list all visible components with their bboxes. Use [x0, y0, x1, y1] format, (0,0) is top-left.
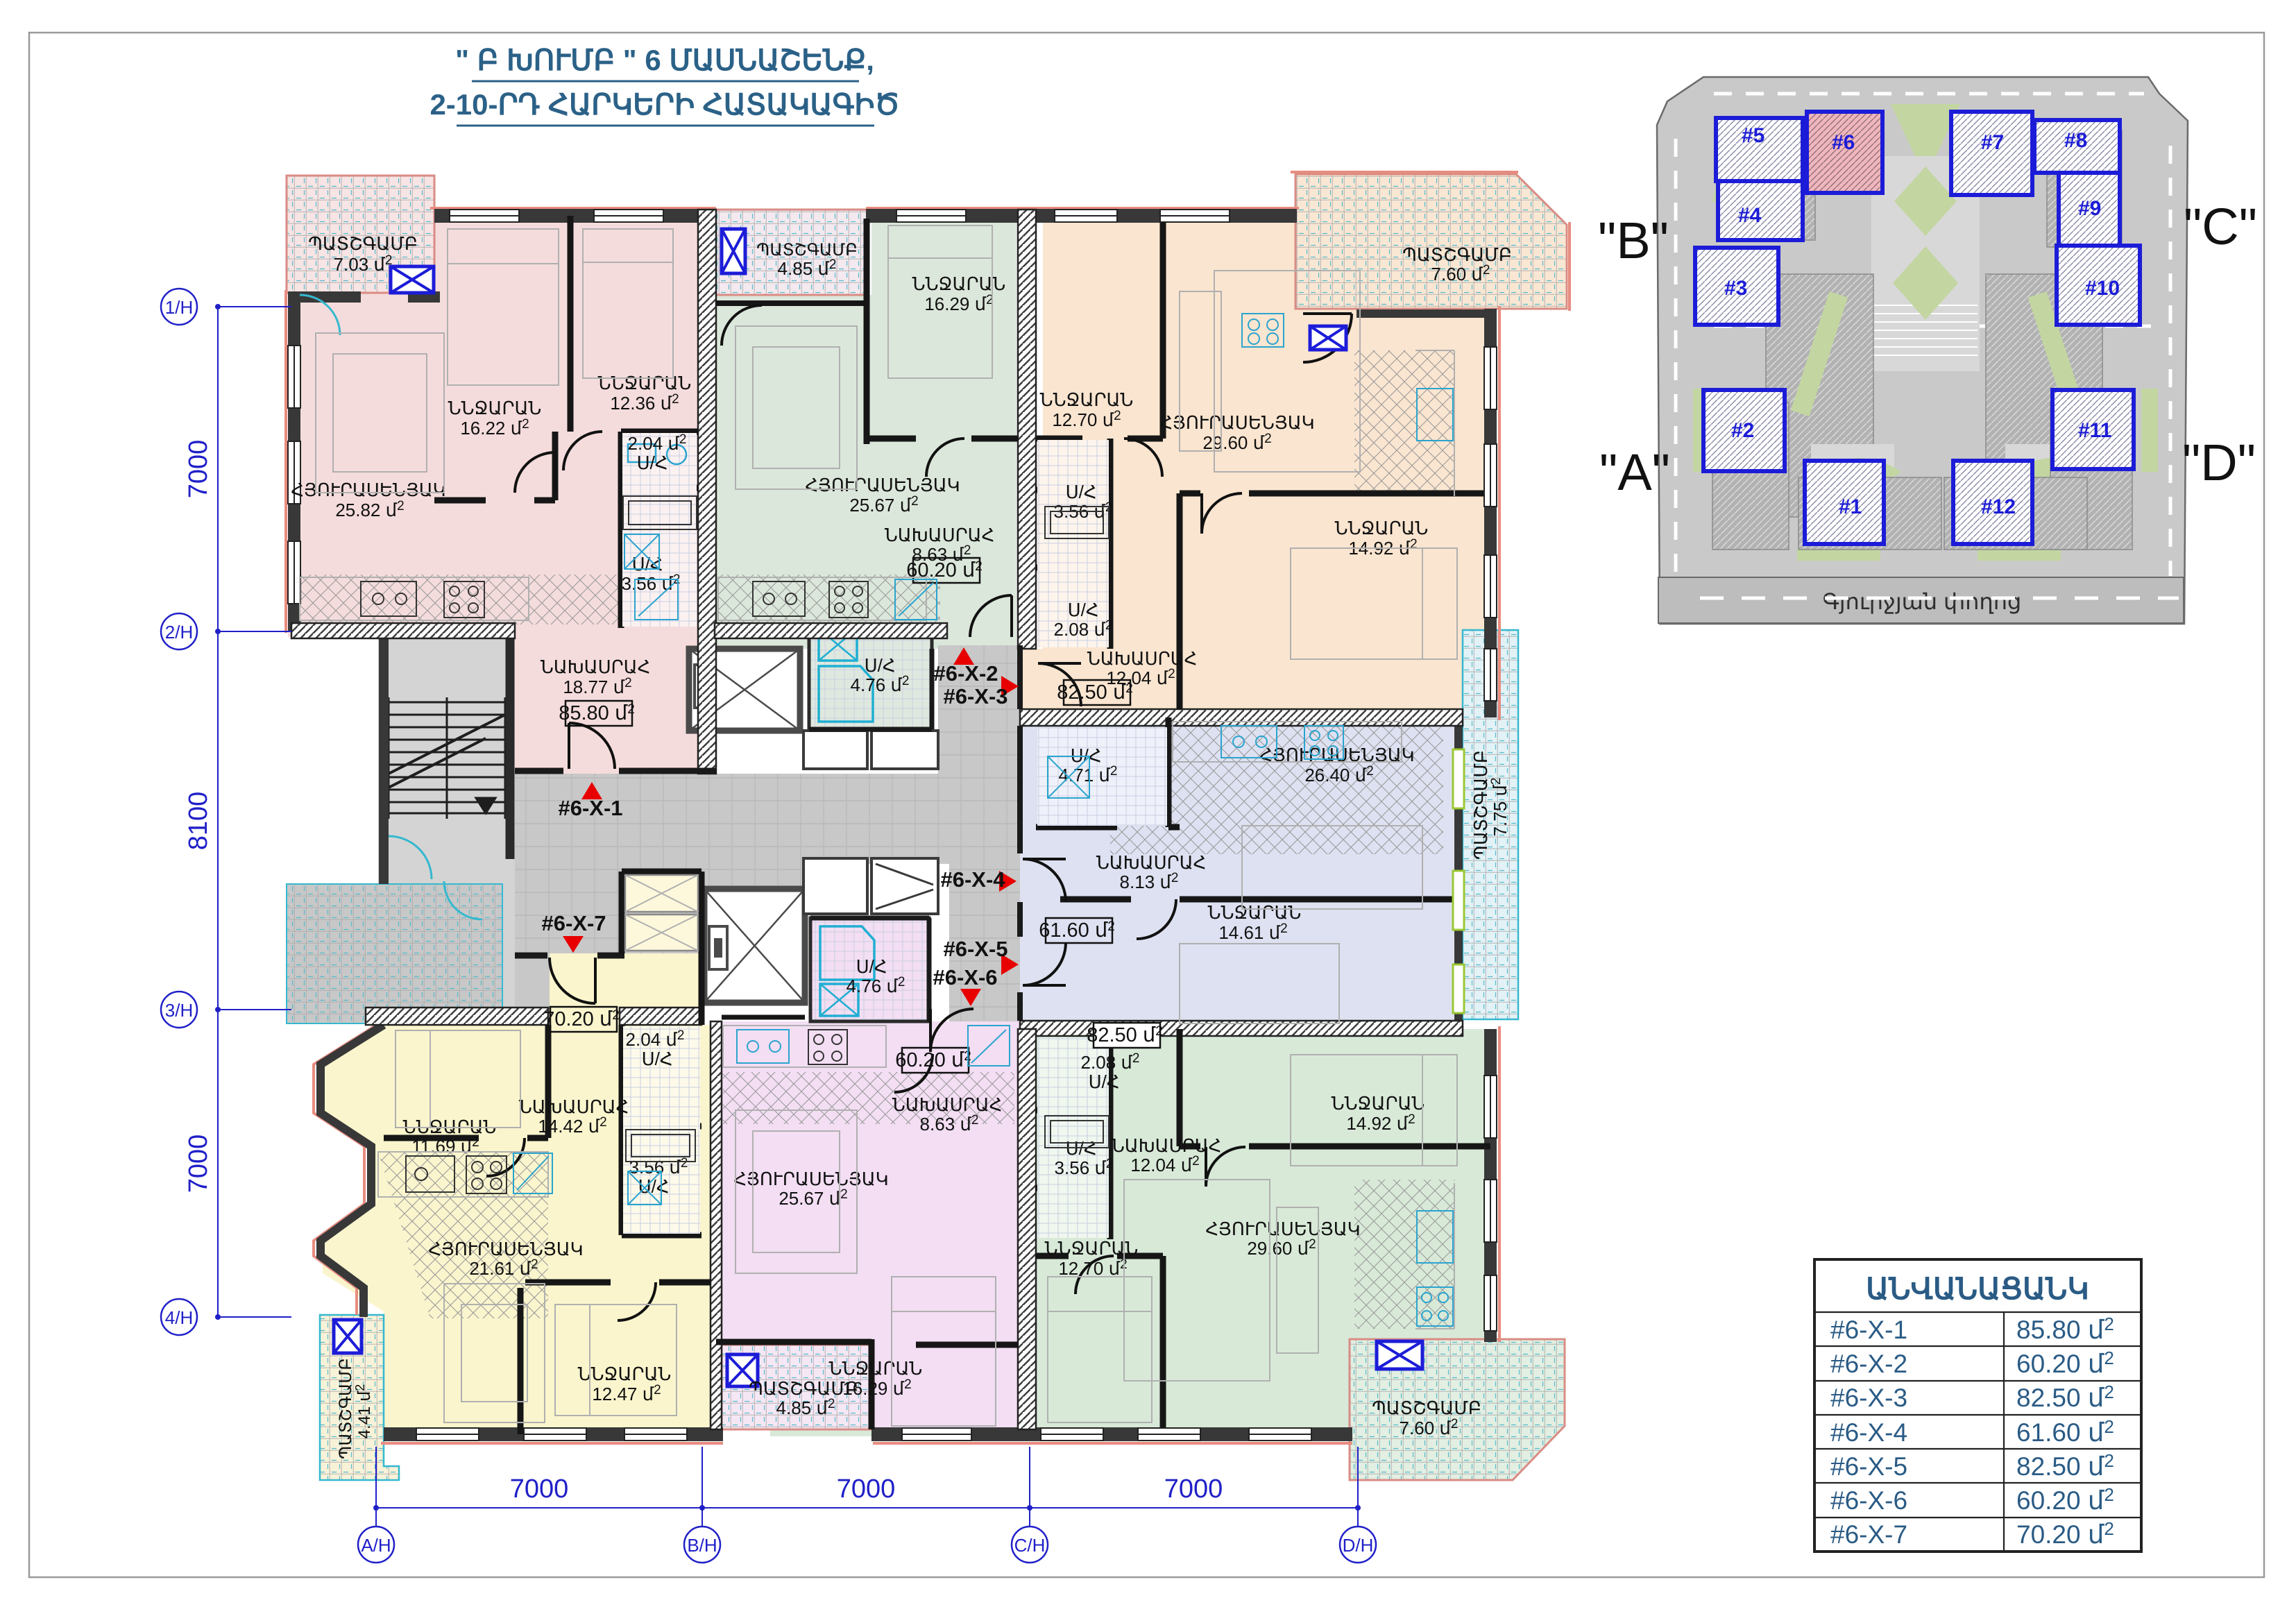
svg-text:#9: #9	[2078, 197, 2101, 220]
svg-text:ՆՆՋԱՐԱՆ: ՆՆՋԱՐԱՆ	[1040, 389, 1134, 410]
svg-text:ՆԱԽԱՍՐԱՀ: ՆԱԽԱՍՐԱՀ	[519, 1096, 629, 1117]
svg-text:7000: 7000	[184, 440, 213, 499]
svg-text:ՀՅՈՒՐԱՍԵՆՅԱԿ: ՀՅՈՒՐԱՍԵՆՅԱԿ	[291, 479, 445, 500]
svg-text:25.67 մ2: 25.67 մ2	[779, 1187, 847, 1209]
svg-text:#6-X-1: #6-X-1	[558, 796, 622, 820]
svg-text:12.70 մ2: 12.70 մ2	[1052, 409, 1121, 430]
svg-text:4.85 մ2: 4.85 մ2	[778, 257, 837, 279]
svg-text:Ս/Հ: Ս/Հ	[1066, 482, 1097, 502]
svg-text:ՆԱԽԱՍՐԱՀ: ՆԱԽԱՍՐԱՀ	[1096, 852, 1206, 873]
svg-text:25.67 մ2: 25.67 մ2	[849, 494, 918, 516]
svg-text:#6-X-6: #6-X-6	[1830, 1486, 1907, 1515]
svg-text:ՆՆՋԱՐԱՆ: ՆՆՋԱՐԱՆ	[1335, 518, 1429, 538]
svg-text:ՆԱԽԱՍՐԱՀ: ՆԱԽԱՍՐԱՀ	[1087, 648, 1197, 669]
svg-text:ՀՅՈՒՐԱՍԵՆՅԱԿ: ՀՅՈՒՐԱՍԵՆՅԱԿ	[1159, 412, 1314, 433]
svg-text:7.60 մ2: 7.60 մ2	[1400, 1417, 1459, 1438]
svg-text:61.60 մ2: 61.60 մ2	[1039, 919, 1115, 942]
svg-text:#1: #1	[1839, 495, 1862, 518]
svg-text:#12: #12	[1981, 495, 2016, 518]
svg-text:60.20 մ2: 60.20 մ2	[895, 1049, 971, 1071]
svg-text:C/H: C/H	[1014, 1535, 1046, 1556]
svg-text:29.60 մ2: 29.60 մ2	[1202, 432, 1271, 453]
svg-text:7000: 7000	[510, 1475, 569, 1504]
svg-text:ՆՆՋԱՐԱՆ: ՆՆՋԱՐԱՆ	[829, 1358, 923, 1379]
svg-text:ՊԱՏՇԳԱՄԲ: ՊԱՏՇԳԱՄԲ	[1402, 244, 1512, 265]
svg-text:ՆՆՋԱՐԱՆ: ՆՆՋԱՐԱՆ	[1332, 1093, 1425, 1114]
svg-text:ՀՅՈՒՐԱՍԵՆՅԱԿ: ՀՅՈՒՐԱՍԵՆՅԱԿ	[428, 1239, 583, 1259]
svg-text:#5: #5	[1742, 124, 1764, 147]
svg-text:Գյուրջյան փողոց: Գյուրջյան փողոց	[1823, 589, 2022, 614]
svg-text:4.85 մ2: 4.85 մ2	[776, 1397, 835, 1418]
svg-text:Ս/Հ: Ս/Հ	[1089, 1071, 1120, 1092]
svg-text:2.04 մ2: 2.04 մ2	[628, 432, 687, 454]
svg-text:#6-X-3: #6-X-3	[1830, 1384, 1907, 1412]
svg-text:61.60 մ2: 61.60 մ2	[2016, 1416, 2114, 1447]
svg-text:8.63 մ2: 8.63 մ2	[920, 1113, 979, 1135]
svg-text:ՀՅՈՒՐԱՍԵՆՅԱԿ: ՀՅՈՒՐԱՍԵՆՅԱԿ	[1205, 1218, 1360, 1239]
svg-text:#6-X-2: #6-X-2	[933, 661, 998, 686]
svg-text:"A": "A"	[1599, 443, 1670, 501]
svg-text:12.47 մ2: 12.47 մ2	[592, 1383, 661, 1404]
svg-text:ՆԱԽԱՍՐԱՀ: ՆԱԽԱՍՐԱՀ	[885, 525, 994, 545]
svg-text:12.04 մ2: 12.04 մ2	[1130, 1154, 1199, 1175]
svg-text:#2: #2	[1731, 419, 1754, 442]
svg-text:60.20 մ2: 60.20 մ2	[2016, 1348, 2114, 1378]
svg-text:29.60 մ2: 29.60 մ2	[1247, 1237, 1316, 1259]
svg-text:60.20 մ2: 60.20 մ2	[2016, 1484, 2114, 1515]
svg-text:1/H: 1/H	[165, 297, 193, 318]
svg-text:ԱՆՎԱՆԱՑԱՆԿ: ԱՆՎԱՆԱՑԱՆԿ	[1866, 1273, 2089, 1306]
svg-text:ՊԱՏՇԳԱՄԲ: ՊԱՏՇԳԱՄԲ	[756, 241, 858, 260]
svg-text:ՊԱՏՇԳԱՄԲ: ՊԱՏՇԳԱՄԲ	[337, 1358, 355, 1459]
svg-text:25.82 մ2: 25.82 մ2	[335, 499, 404, 520]
svg-text:2.08 մ2: 2.08 մ2	[1054, 618, 1113, 640]
svg-text:70.20 մ2: 70.20 մ2	[2016, 1518, 2114, 1549]
svg-text:2.04 մ2: 2.04 մ2	[626, 1028, 685, 1050]
svg-text:60.20 մ2: 60.20 մ2	[906, 559, 983, 581]
svg-text:#6: #6	[1832, 131, 1855, 154]
svg-text:2.08 մ2: 2.08 մ2	[1081, 1051, 1140, 1073]
svg-text:18.77 մ2: 18.77 մ2	[563, 676, 631, 697]
svg-text:26.40 մ2: 26.40 մ2	[1304, 764, 1373, 785]
svg-text:11.69 մ2: 11.69 մ2	[411, 1135, 479, 1157]
svg-text:#6-X-2: #6-X-2	[1830, 1350, 1907, 1378]
svg-text:D/H: D/H	[1343, 1535, 1374, 1556]
svg-text:Ս/Հ: Ս/Հ	[637, 452, 668, 473]
svg-text:8.13 մ2: 8.13 մ2	[1120, 871, 1179, 892]
svg-text:2/H: 2/H	[165, 622, 193, 643]
svg-text:#4: #4	[1738, 204, 1762, 227]
svg-text:Ս/Հ: Ս/Հ	[856, 956, 887, 977]
svg-text:82.50 մ2: 82.50 մ2	[2016, 1450, 2114, 1481]
svg-text:#6-X-4: #6-X-4	[1830, 1418, 1907, 1447]
svg-text:B/H: B/H	[687, 1535, 717, 1556]
svg-text:3.56 մ2: 3.56 մ2	[1055, 1157, 1114, 1178]
svg-text:7000: 7000	[837, 1475, 896, 1504]
svg-text:"C": "C"	[2184, 198, 2257, 255]
svg-text:#3: #3	[1724, 277, 1747, 300]
svg-text:ՆԱԽԱՍՐԱՀ: ՆԱԽԱՍՐԱՀ	[892, 1094, 1002, 1115]
svg-text:#10: #10	[2085, 277, 2120, 300]
svg-text:A/H: A/H	[361, 1535, 391, 1556]
svg-text:4.41 մ2: 4.41 մ2	[353, 1384, 374, 1439]
svg-text:#6-X-3: #6-X-3	[943, 684, 1007, 708]
svg-text:12.36 մ2: 12.36 մ2	[610, 392, 679, 414]
svg-text:7.03 մ2: 7.03 մ2	[334, 253, 393, 275]
svg-text:ՊԱՏՇԳԱՄԲ: ՊԱՏՇԳԱՄԲ	[749, 1378, 858, 1399]
svg-text:#7: #7	[1981, 131, 2004, 154]
svg-text:2-10-ՐԴ ՀԱՐԿԵՐԻ ՀԱՏԱԿԱԳԻԾ: 2-10-ՐԴ ՀԱՐԿԵՐԻ ՀԱՏԱԿԱԳԻԾ	[430, 88, 899, 121]
svg-text:3/H: 3/H	[165, 1000, 193, 1021]
svg-text:#6-X-7: #6-X-7	[541, 911, 606, 935]
svg-text:4.71 մ2: 4.71 մ2	[1059, 764, 1118, 785]
svg-text:82.50 մ2: 82.50 մ2	[2016, 1382, 2114, 1412]
svg-text:7.75 մ2: 7.75 մ2	[1489, 778, 1511, 837]
svg-text:#6-X-4: #6-X-4	[940, 867, 1005, 892]
svg-text:#6-X-6: #6-X-6	[933, 965, 997, 989]
svg-text:ՀՅՈՒՐԱՍԵՆՅԱԿ: ՀՅՈՒՐԱՍԵՆՅԱԿ	[733, 1169, 888, 1189]
svg-text:4.76 մ2: 4.76 մ2	[847, 975, 905, 996]
svg-text:#6-X-5: #6-X-5	[1830, 1452, 1907, 1481]
svg-text:4.76 մ2: 4.76 մ2	[851, 674, 910, 695]
svg-text:82.50 մ2: 82.50 մ2	[1087, 1024, 1163, 1046]
svg-text:ՆԱԽԱՍՐԱՀ: ՆԱԽԱՍՐԱՀ	[1112, 1135, 1221, 1156]
svg-text:#6-X-5: #6-X-5	[943, 937, 1007, 961]
svg-text:ՆՆՋԱՐԱՆ: ՆՆՋԱՐԱՆ	[598, 373, 692, 393]
svg-text:7.60 մ2: 7.60 մ2	[1431, 263, 1490, 284]
svg-text:#6-X-7: #6-X-7	[1830, 1520, 1907, 1549]
svg-text:14.42 մ2: 14.42 մ2	[538, 1115, 606, 1137]
svg-text:3.56 մ2: 3.56 մ2	[622, 572, 681, 594]
svg-text:7000: 7000	[1164, 1475, 1223, 1504]
svg-text:"D": "D"	[2182, 434, 2256, 491]
svg-text:ՀՅՈՒՐԱՍԵՆՅԱԿ: ՀՅՈՒՐԱՍԵՆՅԱԿ	[805, 475, 960, 495]
svg-text:16.29 մ2: 16.29 մ2	[924, 293, 993, 314]
svg-text:ՊԱՏՇԳԱՄԲ: ՊԱՏՇԳԱՄԲ	[1372, 1397, 1481, 1418]
svg-text:ՊԱՏՇԳԱՄԲ: ՊԱՏՇԳԱՄԲ	[308, 233, 418, 254]
svg-text:70.20 մ2: 70.20 մ2	[543, 1008, 620, 1030]
svg-text:"B": "B"	[1598, 212, 1669, 269]
svg-text:85.80 մ2: 85.80 մ2	[2016, 1314, 2114, 1344]
svg-text:Ս/Հ: Ս/Հ	[642, 1048, 673, 1069]
svg-text:" Բ ԽՈՒՄԲ " 6 ՄԱՍՆԱՇԵՆՔ,: " Բ ԽՈՒՄԲ " 6 ՄԱՍՆԱՇԵՆՔ,	[455, 44, 874, 76]
svg-text:#11: #11	[2078, 419, 2111, 442]
svg-text:14.92 մ2: 14.92 մ2	[1346, 1112, 1415, 1134]
svg-text:14.61 մ2: 14.61 մ2	[1218, 921, 1287, 943]
svg-text:16.22 մ2: 16.22 մ2	[460, 417, 529, 439]
svg-text:ՆԱԽԱՍՐԱՀ: ՆԱԽԱՍՐԱՀ	[541, 656, 650, 677]
svg-text:#8: #8	[2064, 129, 2087, 152]
svg-text:Ս/Հ: Ս/Հ	[1068, 600, 1099, 620]
svg-text:ՊԱՏՇԳԱՄԲ: ՊԱՏՇԳԱՄԲ	[1470, 750, 1491, 860]
svg-text:ՆՆՋԱՐԱՆ: ՆՆՋԱՐԱՆ	[1208, 902, 1302, 923]
svg-text:85.80 մ2: 85.80 մ2	[559, 702, 635, 724]
svg-text:#6-X-1: #6-X-1	[1830, 1316, 1907, 1344]
svg-text:ՆՆՋԱՐԱՆ: ՆՆՋԱՐԱՆ	[578, 1363, 672, 1384]
svg-text:12.70 մ2: 12.70 մ2	[1058, 1257, 1127, 1279]
svg-text:82.50 մ2: 82.50 մ2	[1057, 681, 1133, 704]
svg-text:4/H: 4/H	[165, 1307, 193, 1328]
svg-text:Ս/Հ: Ս/Հ	[865, 655, 896, 676]
svg-text:21.61 մ2: 21.61 մ2	[469, 1257, 538, 1279]
svg-text:ՆՆՋԱՐԱՆ: ՆՆՋԱՐԱՆ	[448, 398, 542, 418]
svg-text:7000: 7000	[184, 1135, 213, 1193]
svg-text:8100: 8100	[184, 792, 213, 851]
